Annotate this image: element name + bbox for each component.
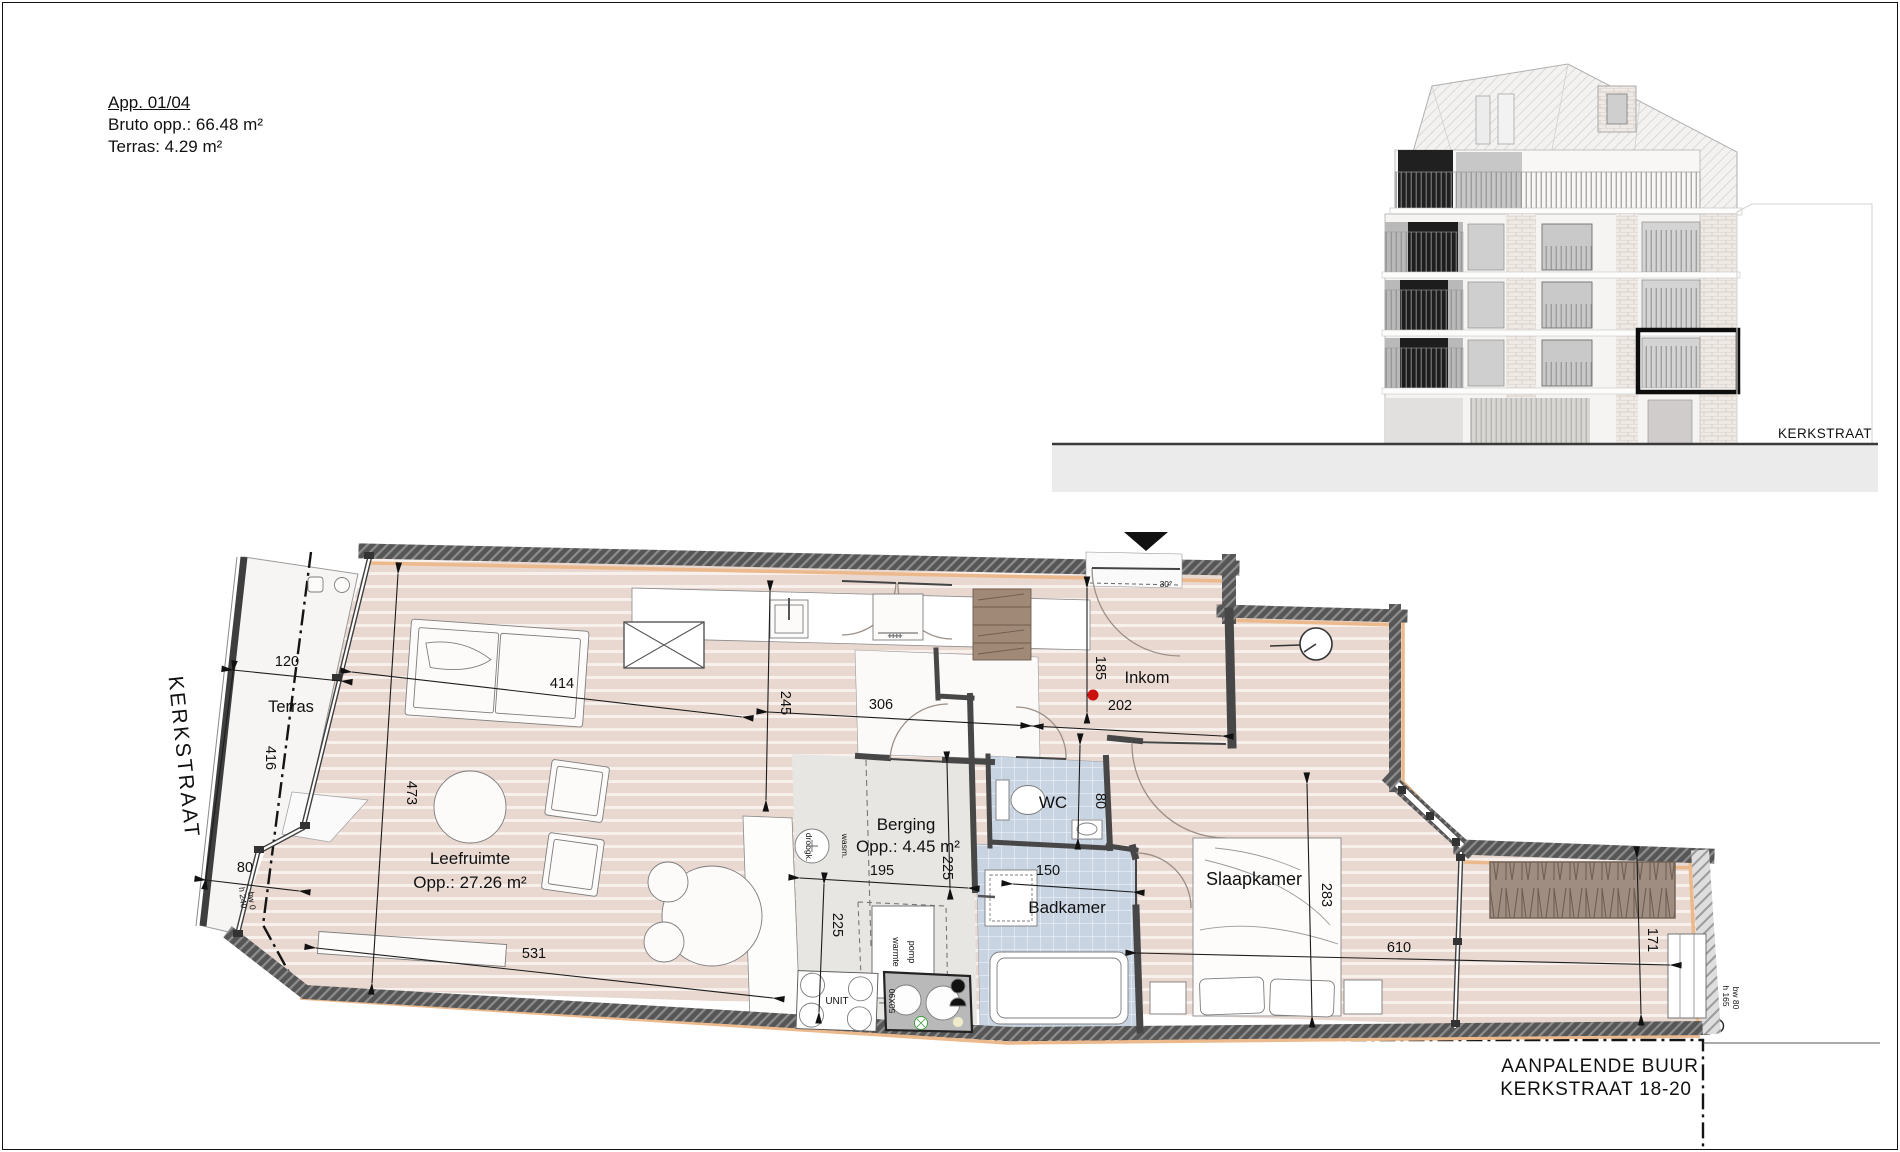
kitchen-sink-top [770,598,808,638]
label-leefruimte: Leefruimte [430,849,510,868]
dim-hall-b: 202 [1108,698,1132,714]
wardrobe [973,589,1031,660]
door-angle-note: 30° [1160,579,1173,589]
terras-stool [308,577,323,592]
floor-row [1382,338,1740,394]
label-wc: WC [1039,793,1067,812]
dining-chair [644,922,684,962]
sink-unit [884,972,972,1032]
nightstand [1150,982,1186,1014]
dryer-label: droogk. [804,833,814,861]
label-leefruimte-opp: Opp.: 27.26 m² [413,873,527,892]
dim-kitchen-depth: 245 [777,691,793,715]
window-sill-h: h 165 [1721,985,1731,1007]
apartment-plan: ++++ [163,532,1880,1150]
dim-berging-depth: 225 [939,856,955,880]
sofa [405,619,589,727]
neighbor-building-outline [1737,204,1872,444]
building-elevation: KERKSTRAAT [1052,64,1878,492]
dim-bedroom-depth: 283 [1318,883,1334,907]
window-sill-bw: bw 80 [1731,987,1741,1010]
label-berging-opp: Opp.: 4.45 m² [856,837,960,856]
dining-chair [648,862,688,902]
terras-table [335,578,350,593]
bathtub [990,952,1128,1024]
shaft-box [624,622,704,668]
top-floor-railing [1395,172,1700,214]
entrance-arrow-icon [1124,532,1168,551]
label-terras: Terras [268,698,314,716]
dormer-glass [1607,94,1627,124]
label-slaapkamer: Slaapkamer [1206,869,1302,889]
floorplan-sheet: App. 01/04 Bruto opp.: 66.48 m² Terras: … [0,0,1900,1152]
apartment-info-block: App. 01/04 Bruto opp.: 66.48 m² Terras: … [108,92,263,158]
coffee-table [434,771,506,843]
neighbor-line2: KERKSTRAAT 18-20 [1500,1079,1692,1100]
armchair [545,759,610,823]
dim-badkamer-width: 150 [1036,863,1060,879]
neighbor-line1: AANPALENDE BUUR [1501,1056,1698,1077]
heatpump-label-2: pomp [907,941,917,964]
apartment-title: App. 01/04 [108,92,263,114]
sink-size-note: 50X90 [887,988,897,1013]
dim-living-width: 414 [550,676,574,692]
dim-terras-bottom: 80 [237,860,253,876]
bed [1193,838,1341,1017]
street-label-left: KERKSTRAAT [163,675,203,840]
chimney [1498,94,1514,144]
planter [1490,862,1675,918]
washer-label: wasm. [840,833,850,859]
dim-terrace-depth: 171 [1644,928,1660,952]
nightstand [1344,980,1382,1014]
label-badkamer: Badkamer [1028,898,1106,917]
svg-text:++++: ++++ [888,634,903,640]
entrance-door-leaf [1092,568,1180,569]
kitchen-appliance: ++++ [873,594,923,640]
dim-living-bottom: 531 [522,946,546,962]
apartment-bruto-area: Bruto opp.: 66.48 m² [108,114,263,136]
floor-row [1382,280,1740,336]
facade-floors [1382,222,1740,444]
plan-drawing: KERKSTRAAT [0,0,1900,1152]
apartment-terras-area: Terras: 4.29 m² [108,136,263,158]
terras-sill-bw: bw 0 [246,891,258,910]
floor-row [1382,222,1740,278]
detector-dot-icon [1088,690,1099,701]
dim-terras-length: 416 [262,746,278,770]
elevation-street-label: KERKSTRAAT [1778,426,1872,441]
dim-wc-depth: 80 [1092,793,1108,809]
label-inkom: Inkom [1125,669,1170,687]
dim-living-depth: 473 [403,781,419,805]
label-berging: Berging [877,815,936,834]
dim-bedroom-width: 610 [1387,940,1411,956]
neighbor-text: AANPALENDE BUUR KERKSTRAAT 18-20 [1500,1056,1699,1100]
dim-hall-a: 306 [869,697,893,713]
dim-kitchen-strip: 225 [829,913,845,937]
armchair [541,832,604,896]
brick-pier [1616,214,1638,444]
east-wall-window [1668,934,1706,1018]
chimney [1476,96,1490,144]
unit-label: UNIT [825,996,848,1007]
heatpump-label-1: warmte [891,936,901,967]
dim-berging-width: 195 [870,863,894,879]
dim-entry-depth: 185 [1092,656,1108,680]
dim-terras-width: 120 [275,654,299,670]
elevation-ground [1052,444,1878,492]
